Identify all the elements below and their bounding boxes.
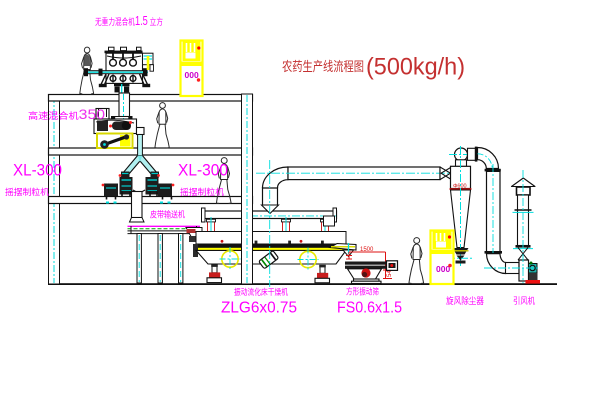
- svg-text:皮带输送机: 皮带输送机: [150, 209, 185, 220]
- svg-text:ZLG6x0.75: ZLG6x0.75: [221, 300, 297, 317]
- svg-text:农药生产线流程图: 农药生产线流程图: [282, 59, 364, 74]
- svg-text:振动流化床干燥机: 振动流化床干燥机: [234, 286, 288, 297]
- svg-text:引风机: 引风机: [513, 295, 535, 306]
- svg-text:XL-300: XL-300: [13, 161, 62, 180]
- svg-text:Φ600: Φ600: [453, 184, 467, 190]
- svg-text:方形振动筛: 方形振动筛: [346, 286, 379, 297]
- svg-text:(500kg/h): (500kg/h): [366, 54, 465, 81]
- svg-text:摇摆制粒机: 摇摆制粒机: [5, 186, 49, 197]
- svg-text:无重力混合机1.5 立方: 无重力混合机1.5 立方: [95, 14, 163, 28]
- svg-text:FS0.6x1.5: FS0.6x1.5: [337, 300, 402, 317]
- svg-text:1500: 1500: [360, 247, 374, 253]
- svg-text:摇摆制粒机: 摇摆制粒机: [180, 186, 224, 197]
- svg-text:旋风除尘器: 旋风除尘器: [446, 295, 484, 306]
- svg-text:000: 000: [185, 70, 199, 80]
- svg-text:XL-300: XL-300: [178, 161, 228, 180]
